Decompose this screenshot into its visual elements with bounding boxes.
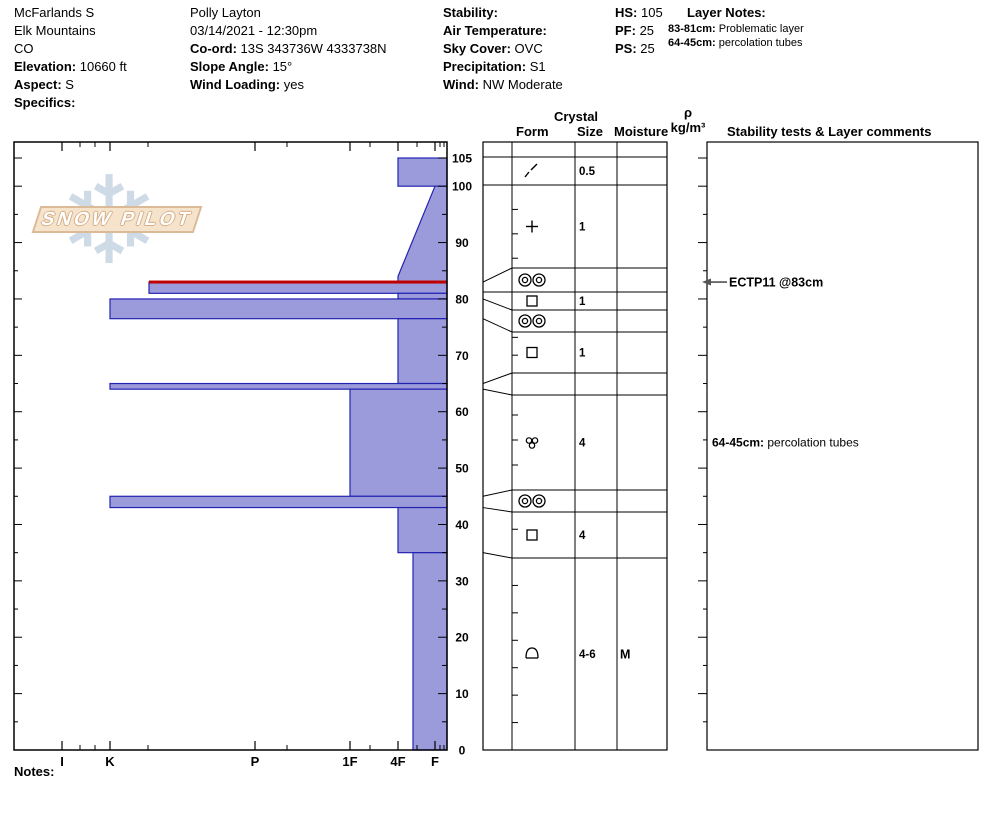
svg-text:M: M — [620, 648, 630, 662]
problem-layer-flag — [149, 281, 447, 284]
layer-bars — [110, 158, 447, 750]
svg-text:ECTP11 @83cm: ECTP11 @83cm — [729, 276, 823, 290]
layer-comment-text: 64-45cm: percolation tubes — [712, 436, 859, 450]
svg-text:60: 60 — [455, 405, 469, 419]
svg-text:1: 1 — [579, 222, 586, 234]
svg-text:30: 30 — [455, 574, 469, 588]
svg-text:4: 4 — [579, 530, 586, 542]
snow-layer-bar — [398, 508, 447, 553]
svg-text:10: 10 — [455, 687, 469, 701]
svg-text:20: 20 — [455, 631, 469, 645]
notes-label: Notes: — [14, 764, 54, 779]
svg-text:0: 0 — [459, 744, 466, 758]
snow-layer-bar — [110, 384, 447, 390]
svg-text:0.5: 0.5 — [579, 166, 596, 178]
snow-layer-bar — [350, 389, 447, 496]
snow-layer-bar — [413, 553, 447, 750]
snow-layer-bar — [398, 186, 447, 282]
svg-text:4-6: 4-6 — [579, 649, 596, 661]
svg-text:90: 90 — [455, 236, 469, 250]
svg-text:4: 4 — [579, 438, 586, 450]
svg-text:100: 100 — [452, 180, 472, 194]
svg-text:40: 40 — [455, 518, 469, 532]
snow-layer-bar — [110, 299, 447, 319]
snow-layer-bar — [398, 319, 447, 384]
snow-layer-bar — [398, 293, 447, 299]
snow-layer-bar — [110, 496, 447, 507]
svg-text:1: 1 — [579, 296, 586, 308]
svg-text:I: I — [60, 754, 64, 769]
snow-layer-bar — [398, 158, 447, 186]
svg-text:70: 70 — [455, 349, 469, 363]
grain-table — [483, 142, 667, 750]
svg-text:K: K — [105, 754, 115, 769]
snowpilot-profile-page: McFarlands SElk MountainsCOElevation: 10… — [0, 0, 994, 840]
annotations: ECTP11 @83cm64-45cm: percolation tubes — [702, 276, 859, 450]
svg-text:80: 80 — [455, 292, 469, 306]
svg-text:1: 1 — [579, 348, 586, 360]
svg-text:1F: 1F — [342, 754, 357, 769]
snow-profile-chart: 1051009080706050403020100IKP1F4FF0.51114… — [0, 0, 994, 840]
snow-layer-bar — [149, 282, 447, 293]
svg-text:F: F — [431, 754, 439, 769]
svg-text:50: 50 — [455, 462, 469, 476]
svg-text:105: 105 — [452, 152, 472, 166]
svg-text:P: P — [251, 754, 260, 769]
svg-text:4F: 4F — [390, 754, 405, 769]
